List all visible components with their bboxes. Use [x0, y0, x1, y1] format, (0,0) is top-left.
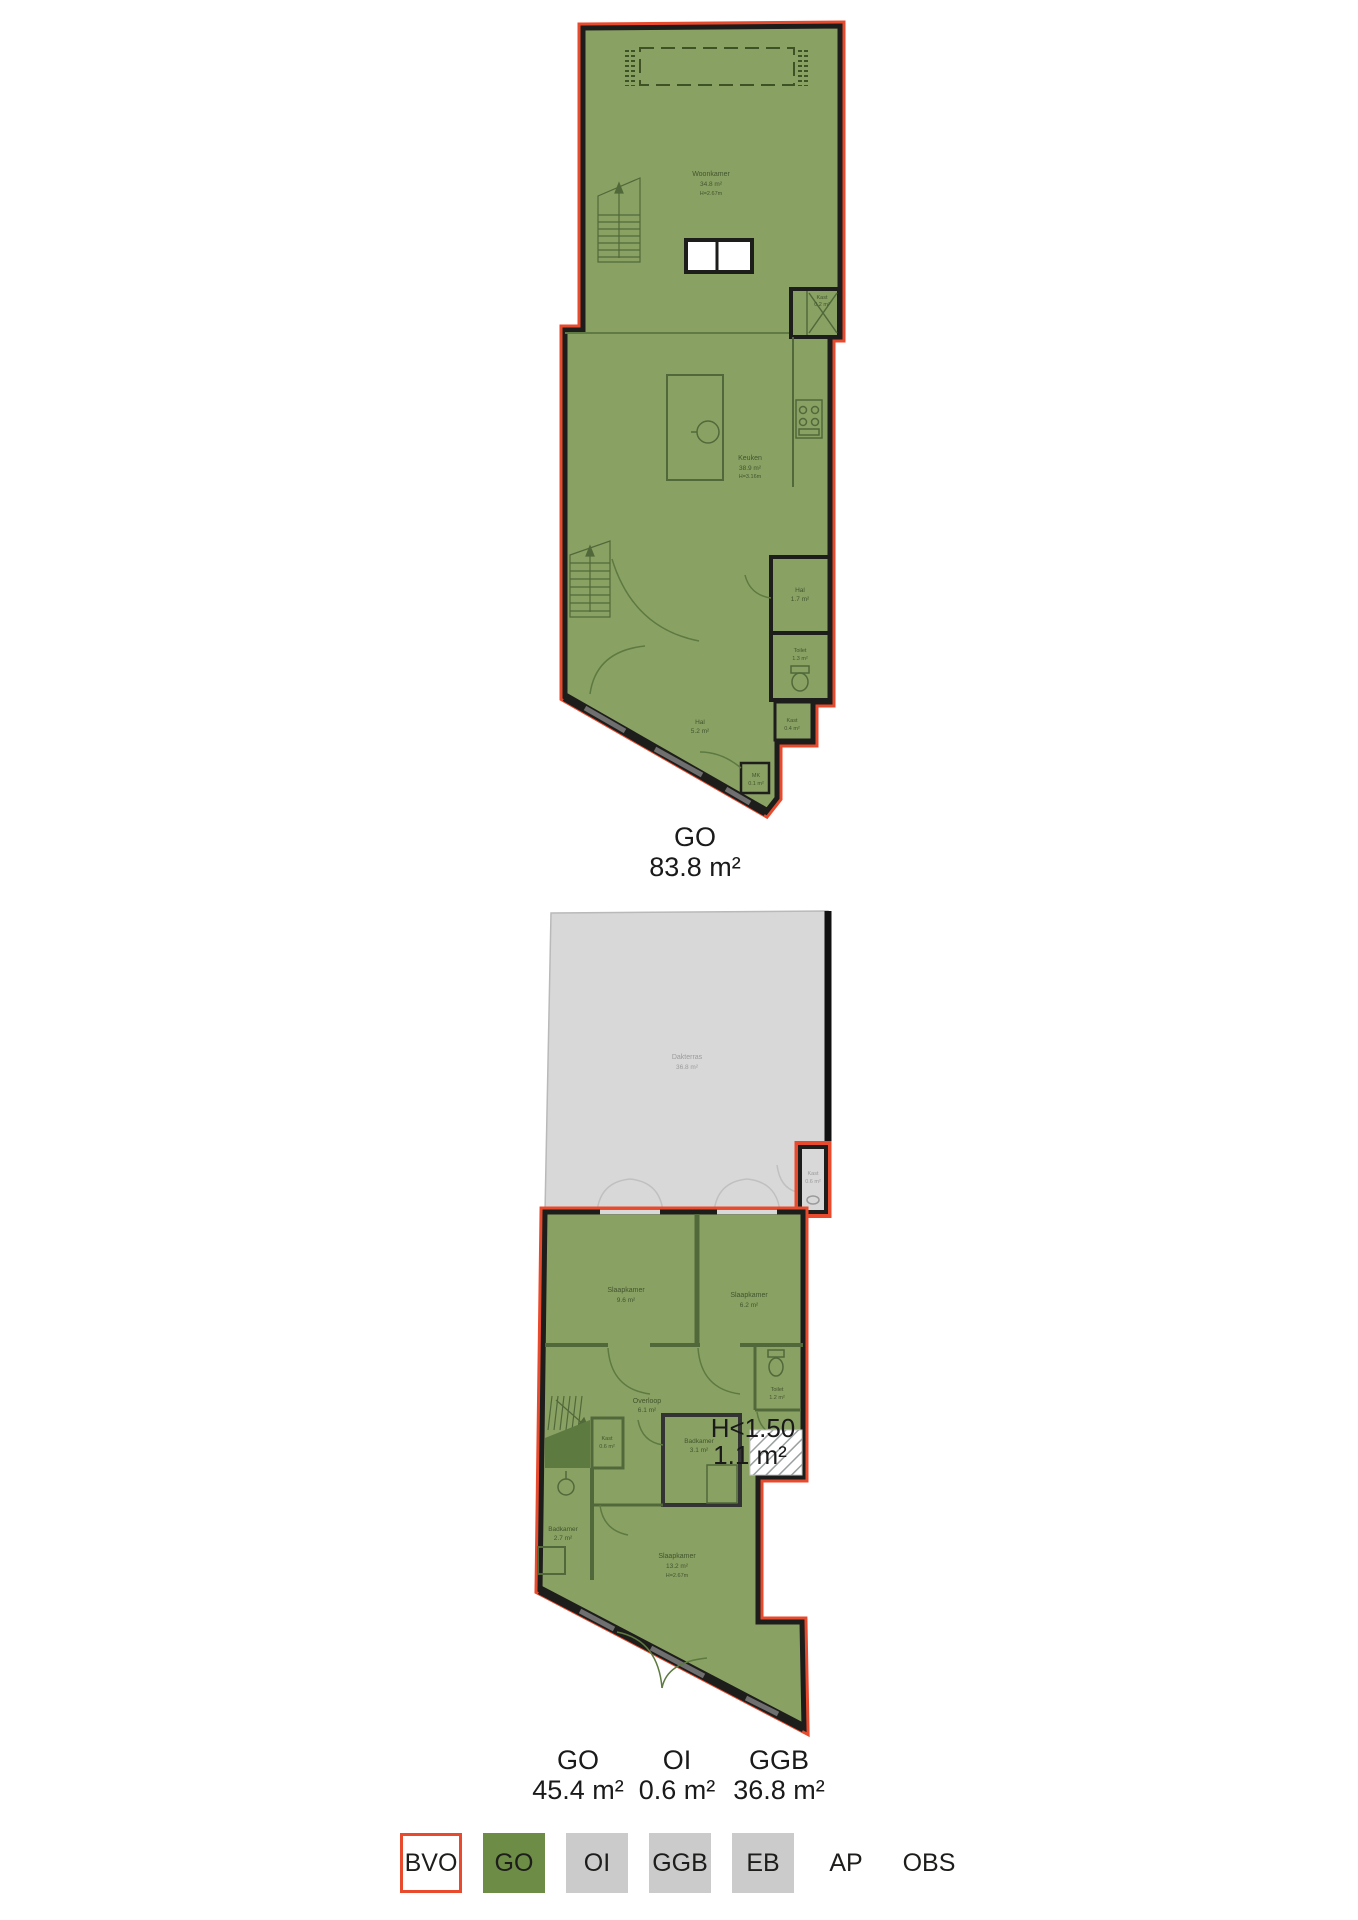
- room-label-kast2-name: Kast: [601, 1436, 612, 1442]
- room-label-badkamer1-area: 3.1 m²: [690, 1447, 709, 1454]
- room-label-hal-name: Hal: [695, 719, 705, 726]
- low-headroom-label-line1: H<1.50: [711, 1413, 796, 1443]
- plan1-summary-label: GO: [595, 822, 795, 852]
- room-label-badkamer2-name: Badkamer: [548, 1526, 578, 1533]
- floorplan-lower: Dakterras 36.8 m² Kast 0.6 m²: [530, 905, 875, 1750]
- shaft: [686, 240, 752, 272]
- plan1-go-area: [565, 26, 840, 812]
- legend-item-go: GO: [483, 1833, 545, 1893]
- room-label-kast2-area: 0.6 m²: [599, 1444, 615, 1450]
- plan1-summary: GO 83.8 m²: [595, 822, 795, 882]
- room-label-toilet-name: Toilet: [794, 648, 807, 654]
- legend-item-obs: OBS: [898, 1833, 960, 1893]
- room-label-kast-area: 0.4 m²: [784, 726, 800, 732]
- plan2-summary-ggb: GGB 36.8 m²: [714, 1745, 844, 1805]
- room-label-slaapkamer3-height: H=2.67m: [666, 1573, 689, 1579]
- room-label-kast-oi-name: Kast: [807, 1171, 818, 1177]
- room-label-hal-boven-area: 1.7 m²: [791, 596, 810, 603]
- room-kast-oi: Kast 0.6 m²: [797, 1143, 830, 1216]
- room-label-woonkamer-area: 34.8 m²: [700, 181, 723, 188]
- room-label-toilet-area: 1.3 m²: [792, 656, 808, 662]
- room-label-badkamer2-area: 2.7 m²: [554, 1535, 573, 1542]
- room-label-keuken-height: H=3.16m: [739, 474, 762, 480]
- legend-item-ggb: GGB: [649, 1833, 711, 1893]
- room-label-kast-oi-area: 0.6 m²: [805, 1179, 821, 1185]
- room-label-toilet2-name: Toilet: [771, 1387, 784, 1393]
- terrace-area: [545, 911, 828, 1212]
- room-kast-top: Kast 0.2 m²: [791, 289, 839, 337]
- legend-item-bvo: BVO: [400, 1833, 462, 1893]
- room-label-overloop-name: Overloop: [633, 1398, 662, 1405]
- room-label-slaapkamer3-name: Slaapkamer: [658, 1553, 696, 1560]
- room-label-kast-name: Kast: [786, 718, 797, 724]
- room-label-slaapkamer3-area: 13.2 m²: [666, 1563, 689, 1570]
- room-label-mk-name: MK: [752, 773, 761, 779]
- room-label-mk-area: 0.1 m²: [748, 781, 764, 787]
- room-label-hal-boven-name: Hal: [795, 587, 805, 594]
- legend-item-ap: AP: [815, 1833, 877, 1893]
- room-label-woonkamer-height: H=2.67m: [700, 191, 723, 197]
- room-label-keuken-area: 38.9 m²: [739, 465, 762, 472]
- room-label-slaapkamer2-name: Slaapkamer: [730, 1292, 768, 1299]
- plan2-summary-ggb-label: GGB: [714, 1745, 844, 1775]
- room-label-kast-top-area: 0.2 m²: [814, 302, 830, 308]
- room-label-overloop-area: 6.1 m²: [638, 1407, 657, 1414]
- room-label-toilet2-area: 1.2 m²: [769, 1395, 785, 1401]
- plan1-summary-area: 83.8 m²: [595, 852, 795, 882]
- room-label-woonkamer-name: Woonkamer: [692, 171, 730, 178]
- room-label-hal-area: 5.2 m²: [691, 728, 710, 735]
- legend-item-eb: EB: [732, 1833, 794, 1893]
- floorplan-upper: Kast 0.2 m²: [540, 15, 860, 825]
- legend: BVO GO OI GGB EB AP OBS: [400, 1833, 960, 1893]
- room-label-keuken-name: Keuken: [738, 455, 762, 462]
- plan2-summary-ggb-area: 36.8 m²: [714, 1775, 844, 1805]
- low-headroom-label-line2: 1.1 m²: [713, 1440, 787, 1470]
- room-label-slaapkamer1-name: Slaapkamer: [607, 1287, 645, 1294]
- legend-item-oi: OI: [566, 1833, 628, 1893]
- room-label-badkamer1-name: Badkamer: [684, 1438, 714, 1445]
- room-label-slaapkamer2-area: 6.2 m²: [740, 1302, 759, 1309]
- room-label-slaapkamer1-area: 9.6 m²: [617, 1297, 636, 1304]
- floorplan-page: Kast 0.2 m²: [0, 0, 1358, 1920]
- room-label-kast-top-name: Kast: [816, 295, 827, 301]
- room-label-dakterras-area: 36.8 m²: [676, 1064, 699, 1071]
- room-label-dakterras-name: Dakterras: [672, 1054, 703, 1061]
